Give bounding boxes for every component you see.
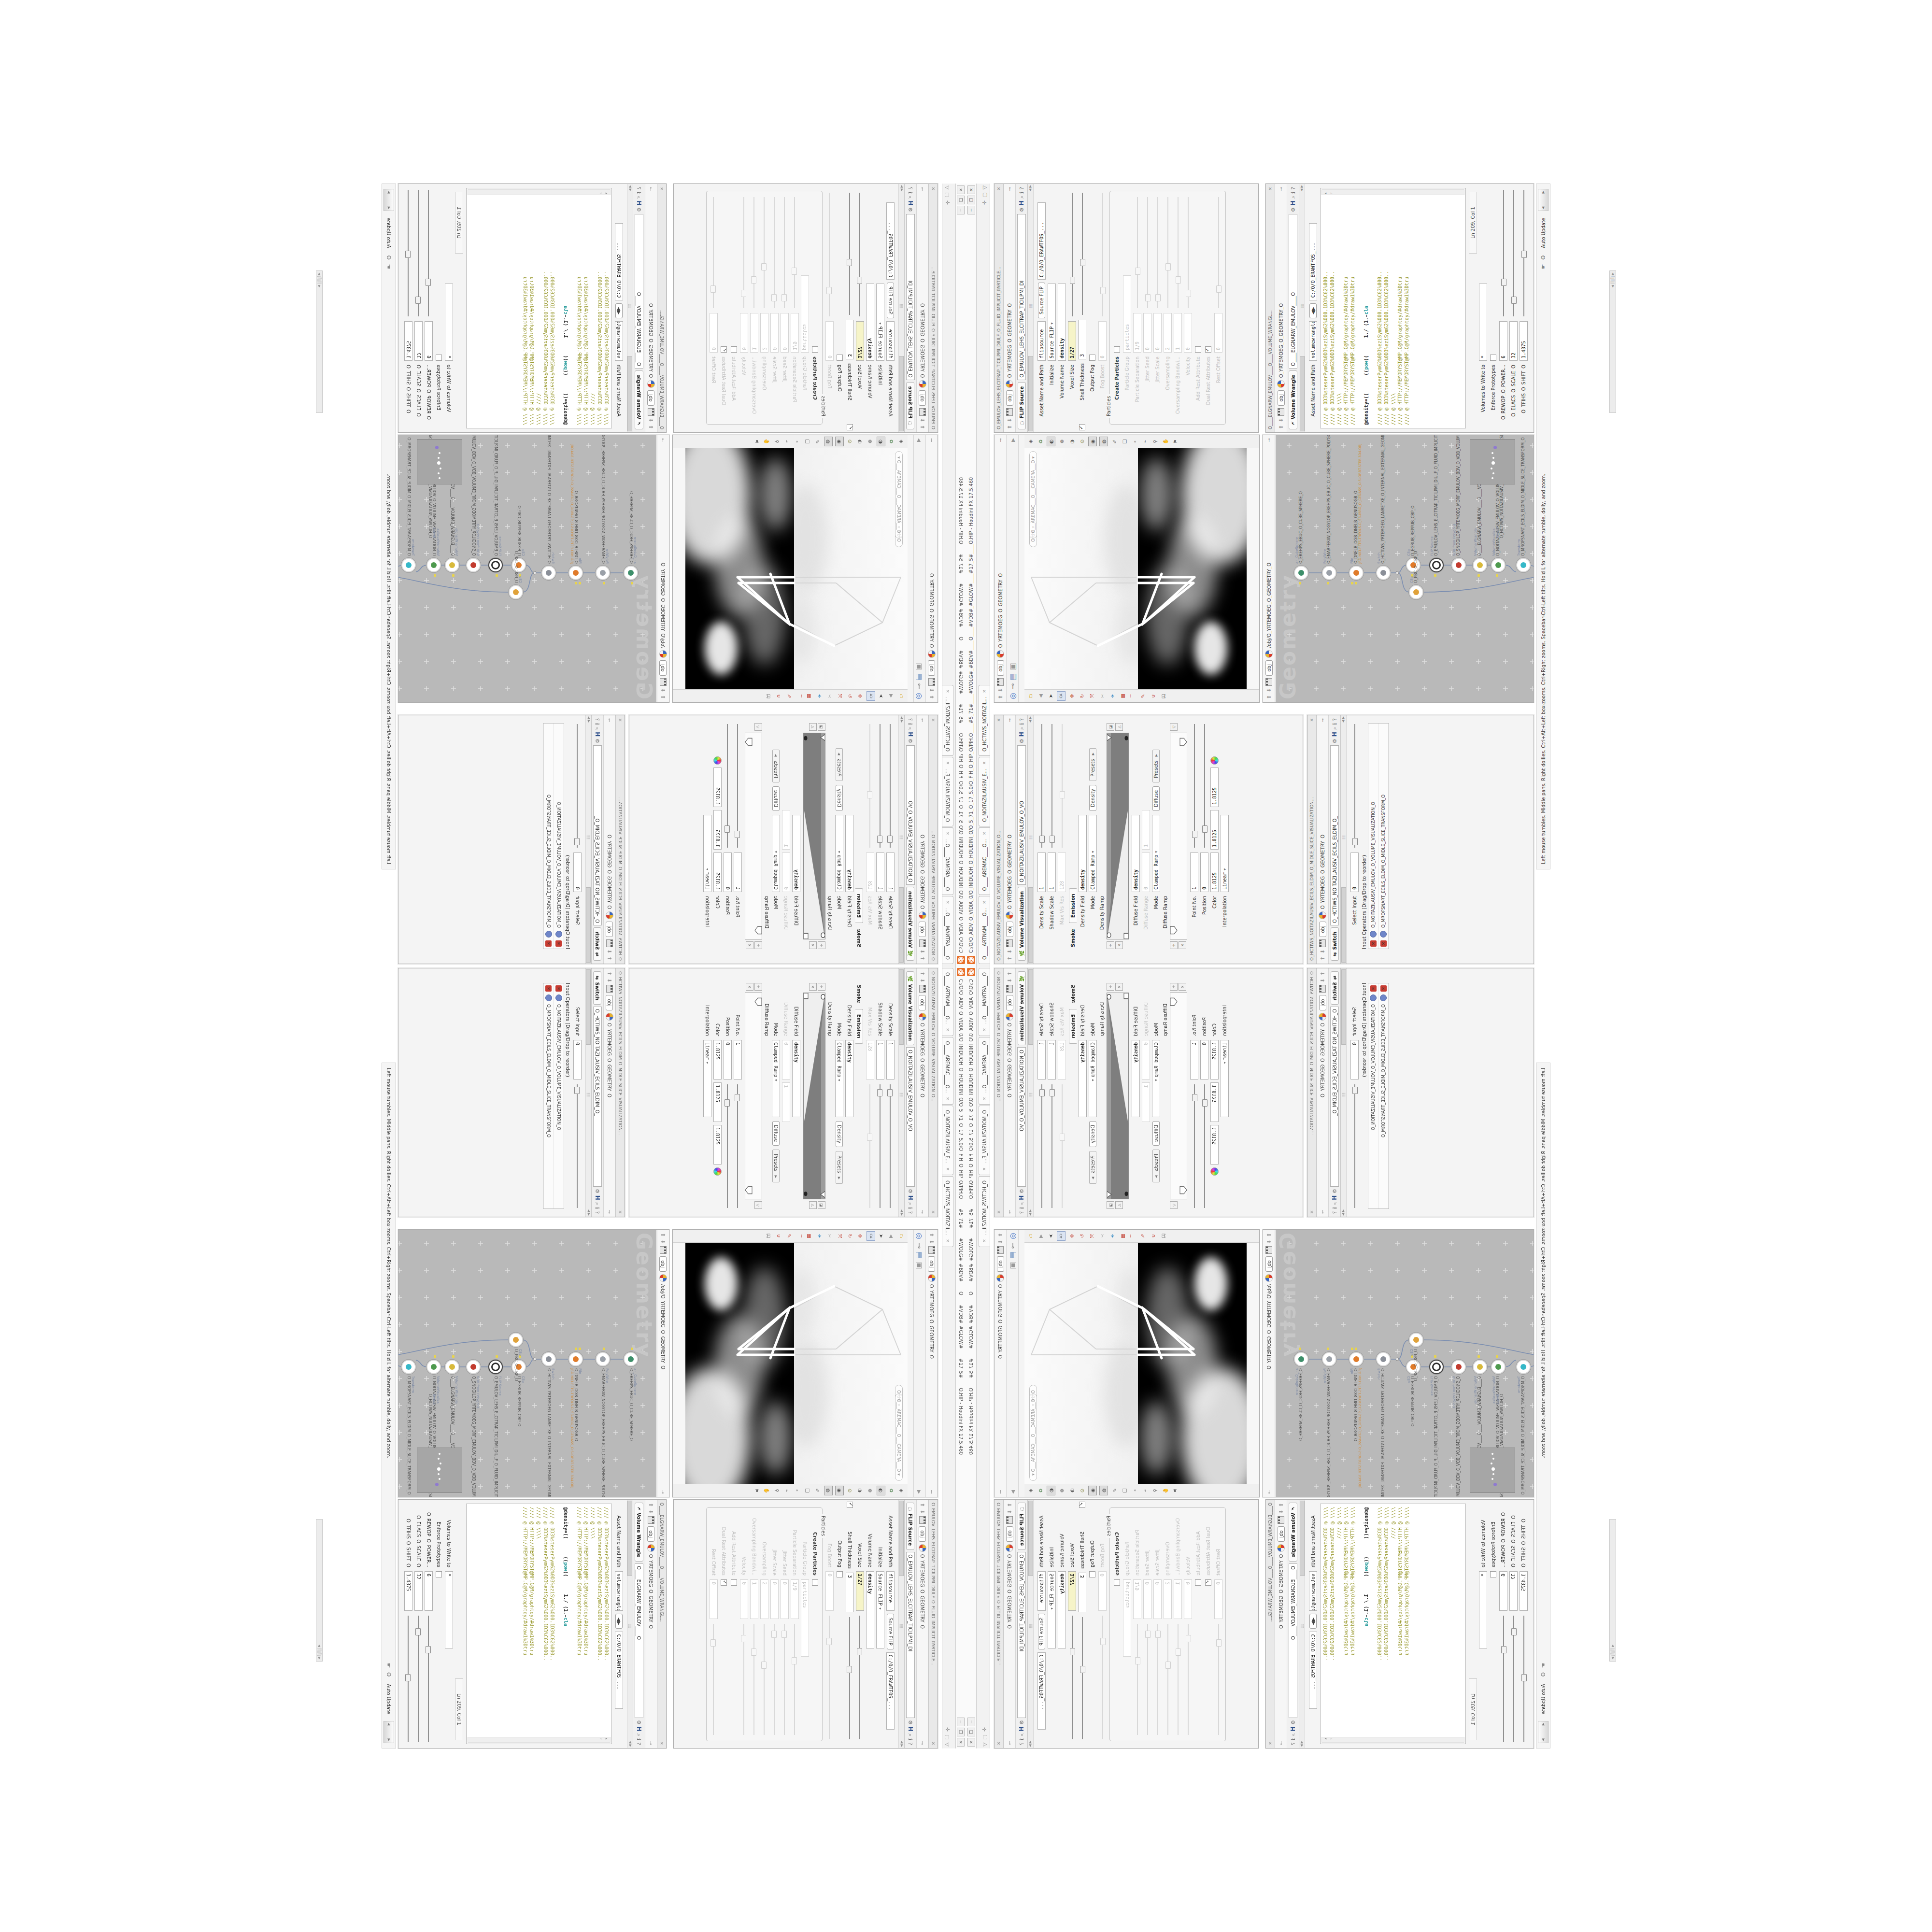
presets-button[interactable]: Presets▶ [1152,750,1160,782]
target-icon[interactable]: ◉ [1088,1486,1097,1495]
pin-icon[interactable]: ⊸ [649,187,654,191]
param-field-keyframed[interactable]: 1/27 [1068,1571,1076,1611]
gear-icon[interactable]: ⚙ [595,739,601,743]
operator-tab[interactable]: ⇆ Switch [594,927,602,961]
param-slider[interactable] [850,193,851,315]
help-icon[interactable]: ? [1290,187,1296,190]
view-tool-icon[interactable]: CA [1057,691,1065,701]
info-icon[interactable]: ℹ [908,192,914,194]
add-rest-checkbox[interactable] [731,1579,737,1586]
presets-button[interactable]: Presets▶ [772,750,780,782]
asset-path-field[interactable]: C:/O/O_ERAWTFOS_... [886,1652,895,1730]
output-fog-checkbox[interactable] [837,1571,843,1577]
node-polywire[interactable]: PolyWireO_EMARFERIW_NOGYLOP_EREHPS_EBUC_… [1322,566,1336,580]
nav-down-icon[interactable]: ⬇ [607,950,613,954]
add-point-icon[interactable]: ✛ [818,941,825,949]
horizontal-scrollbar[interactable]: ⣿⣿◀ ▶ [1028,184,1034,432]
close-icon[interactable]: ✕ [1268,1741,1273,1745]
pen-tool-icon[interactable]: ✎ [785,692,793,700]
nav-down-icon[interactable]: ⬇ [1266,688,1272,693]
node-volume-wrangle[interactable]: Volume WrangleO____ELGNARW_EMULOV____O__… [445,558,459,572]
param-slider[interactable] [880,1084,881,1208]
marker-icon[interactable]: ▽ [754,723,762,731]
help-icon[interactable]: ? [595,718,601,721]
bulb-icon[interactable]: ⊙ [1078,437,1086,446]
operator-tab[interactable]: 🌿 Volume Visualization [1018,887,1026,961]
param-field[interactable]: 1.4375 [404,321,412,361]
param-field[interactable]: 6 [425,1571,433,1611]
snapshot-icon[interactable]: ▣ [915,663,924,670]
param-field[interactable]: 1.8125 [713,852,722,892]
pin-icon[interactable]: ⊸ [607,1210,612,1214]
recycle-icon[interactable]: ♻ [1540,255,1547,260]
param-field[interactable]: 0 [1200,852,1208,892]
param-slider[interactable] [1072,1616,1073,1739]
radial-menu-icon[interactable]: ◎ [915,1233,924,1239]
paint-tool-icon[interactable]: ✈ [816,1232,824,1240]
lasso-tool-icon[interactable]: ⌒ [796,692,803,700]
select-tool-icon[interactable]: ➤ [1047,1232,1054,1240]
move-tool-icon[interactable]: ✥ [1068,692,1076,700]
add-point-icon[interactable]: ✛ [1170,983,1178,991]
obj-chip[interactable]: obj [919,995,926,1010]
param-field-keyframed[interactable]: 1/27 [856,1571,864,1611]
param-field[interactable]: 1 [734,1040,742,1080]
close-icon[interactable]: ✕ [957,185,965,194]
param-field[interactable]: 1.8125 [1210,810,1219,850]
param-slider[interactable] [1082,193,1083,315]
node-volume-visualization[interactable]: VolumeVisualizaO_NOITAZILAUSIV_EMULOV_O_… [426,558,441,572]
layout-icon[interactable]: ▤ [915,673,924,681]
param-field[interactable]: 1 [734,852,742,892]
help-icon[interactable]: ? [636,187,642,190]
view-mode-icon[interactable]: ◈ [898,437,906,446]
tab-close-icon[interactable]: ✕ [982,689,987,693]
density-ramp-widget[interactable]: ✛ ✕ ◪ △ [1107,723,1129,949]
magnifier-icon[interactable]: ⌕ [1019,1733,1025,1736]
layout-icon[interactable]: ▤ [1008,673,1017,681]
tab-emission[interactable]: Emission [1069,888,1077,923]
right-arrow-icon[interactable]: ▶ [1541,1739,1545,1741]
grid-tool-icon[interactable]: ▦ [806,1232,813,1240]
delete-point-icon[interactable]: ✕ [1179,941,1186,949]
notes-tool-icon[interactable]: 🗀 [1026,692,1034,700]
brush-icon[interactable]: ✐ [1110,437,1118,446]
magnifier-icon[interactable]: ⌕ [636,196,642,199]
close-icon[interactable]: ✕ [659,1741,664,1745]
pane-icon[interactable]: ▢ [981,1734,988,1739]
param-field[interactable]: 1.4375 [1520,1571,1528,1611]
param-field[interactable]: 1.8125 [1210,852,1219,892]
nav-up-icon[interactable]: ⬆ [1007,425,1013,429]
hand-icon[interactable]: ✋ [1161,1486,1169,1495]
camera-lock-icon[interactable]: ◐ [877,437,885,446]
nav-up-icon[interactable]: ⬆ [1266,695,1272,699]
scale-tool-icon[interactable]: ⤧ [1088,692,1096,700]
maximize-icon[interactable]: ❐ [967,196,975,204]
node-volume-wrangle[interactable]: Volume WrangleO____ELGNARW_EMULOV____O__… [1473,1360,1487,1374]
float-window-title[interactable]: O_NOITAZILAUSIV_EMULOV_O_VOLUME_VISUALIZ… [994,715,1004,964]
tab-close-icon[interactable]: ✕ [945,689,950,693]
list-item[interactable]: ✕ O_MROFSNART_ECILS_ELDIM_O_MIDLE_SLICE_… [543,983,554,1208]
close-icon[interactable]: ✕ [1268,187,1273,191]
mode-dropdown[interactable]: Clamped Ramp▼ [1089,1040,1097,1117]
interpolation-dropdown[interactable]: Linear▼ [703,815,711,892]
tab-close-icon[interactable]: ✕ [982,1167,987,1171]
hook-icon[interactable]: ⌁ [783,1486,791,1495]
param-field[interactable]: 1.4375 [1520,321,1528,361]
horizontal-scrollbar[interactable]: ⣿⣿◀ ▶ [1299,1500,1305,1748]
node-switch-1[interactable]: SwitchO_HCTIWS_YRTEMOEG_LANRETXE_O_INTER… [1376,566,1391,580]
expand-icon[interactable]: ◪ [1107,723,1114,731]
view-tool-icon[interactable]: CA [867,1231,875,1241]
node-vdb-from-polygons[interactable]: VDB from PolygonsO_SNOGILOP_YRTEMOEG_MOR… [466,558,481,572]
node-file[interactable]: FileO_DNELB_OGB_DNELB_GENUSOGB_OJRD.N03.… [568,566,583,580]
mask-icon[interactable]: ❏ [804,1486,811,1495]
nav-down-icon[interactable]: ⬇ [997,1239,1004,1244]
param-field[interactable]: density [1132,815,1140,892]
obj-chip[interactable]: obj [1265,1256,1273,1271]
rotate-tool-icon[interactable]: ↻ [846,692,854,700]
diffuse-ramp-widget[interactable]: ✛ ✕ ▽ [1170,983,1187,1209]
tab-emission[interactable]: Emission [855,1009,863,1044]
help-icon[interactable]: ? [1019,718,1025,721]
operator-name-field[interactable]: O____ELGNARW_EMULOV____O [1289,1563,1297,1718]
recycle-view-icon[interactable]: ♻ [888,1486,895,1495]
param-field[interactable]: 1 [1048,1040,1056,1080]
network-breadcrumb[interactable]: /obj/O_YRTEMOEG_O_GEOMETRY_O [1266,563,1272,648]
collapse-icon[interactable]: ▽ [981,1743,988,1747]
nav-up-icon[interactable]: ⬆ [1320,956,1326,961]
asset-path-field[interactable]: C:/O/O_ERAWTFOS_... [1309,1632,1317,1709]
node-vdb-from-polygons[interactable]: VDB from PolygonsO_SNOGILOP_YRTEMOEG_MOR… [1451,1360,1466,1374]
nav-down-icon[interactable]: ⬇ [1320,950,1326,954]
operator-tab[interactable]: ◌ FLIP Source [907,382,915,429]
info-icon[interactable]: ℹ [1019,1738,1025,1740]
delete-input-icon[interactable]: ✕ [556,940,562,947]
shade-icon[interactable]: ◍ [1099,437,1108,446]
pane-icon[interactable]: ▢ [944,192,951,197]
cut-tool-icon[interactable]: ✂ [1098,692,1106,700]
info-icon[interactable]: ℹ [908,723,914,725]
color-wheel-icon[interactable] [1210,1167,1219,1176]
tab-visualization[interactable]: O_NOITAZILAUSIV_E... ✕ [942,1106,953,1175]
tab-mantra[interactable]: O____ARTNAM____O... ✕ [942,968,953,1036]
tab-smoke[interactable]: Smoke [1069,980,1077,1008]
nav-down-icon[interactable]: ⬇ [660,688,667,693]
param-field[interactable]: density [845,815,853,892]
enforce-prototypes-checkbox[interactable] [1490,1571,1496,1577]
geometry-path[interactable]: O_YRTEMOEG_O_GEOMETRY_O [607,1023,612,1097]
back-tool-icon[interactable]: ◀ [1037,692,1044,700]
horizontal-scrollbar[interactable]: ⣿⣿◀ ▶ [1341,715,1347,964]
param-field[interactable]: 1.8125 [1210,1125,1219,1165]
snapshot-icon[interactable]: ▣ [1008,663,1017,670]
magnifier-icon[interactable]: ⌕ [908,196,914,199]
nav-up-icon[interactable]: ⬆ [920,956,926,961]
viewport-canvas[interactable]: Ortho ▾ O___AREMAC___O___CAMERA___O ▾ [1024,1243,1259,1484]
recycle-view-icon[interactable]: ♻ [1037,1486,1044,1495]
param-field[interactable]: density [1079,815,1087,892]
nav-up-icon[interactable]: ⬆ [997,695,1004,699]
nav-down-icon[interactable]: ⬇ [1266,1239,1272,1244]
operator-tab[interactable]: ⇆ Switch [1331,971,1339,1005]
float-window-title[interactable]: O____ELGNARW_EMULOV____O____VOLUME_WRANG… [657,1500,666,1748]
marker-icon[interactable]: △ [1115,1201,1123,1209]
magnifier-icon[interactable]: ⌕ [1332,1202,1338,1205]
bottom-scroll-strip[interactable] [316,1519,323,1662]
node-switch-1[interactable]: SwitchO_HCTIWS_YRTEMOEG_LANRETXE_O_INTER… [541,1352,556,1366]
network-minimap[interactable] [417,1448,462,1493]
nav-down-icon[interactable]: ⬇ [920,950,926,954]
horizontal-scrollbar[interactable]: ⣿⣿◀ ▶ [1028,1500,1034,1748]
operator-name-field[interactable]: O_NOITAZILAUSIV_EMULOV_O_VO [1017,1047,1026,1187]
density-ramp[interactable] [1107,733,1129,939]
param-field[interactable]: 0 [1350,1040,1359,1080]
help-icon[interactable]: ? [1019,1211,1025,1214]
add-point-icon[interactable]: ✛ [1107,983,1114,991]
param-field[interactable]: density [792,815,800,892]
nav-down-icon[interactable]: ⬇ [1007,1509,1013,1514]
wand-icon[interactable]: ⚲ [773,1486,781,1495]
update-mode-strip[interactable]: ◀▶ [1538,1721,1548,1743]
asset-lr-chip[interactable]: ◀▶ [615,1614,623,1629]
left-arrow-icon[interactable]: ◀ [1541,207,1545,209]
vertical-scrollbar[interactable] [1321,1737,1464,1743]
obj-chip[interactable]: obj [1319,995,1326,1010]
param-field[interactable]: 1.8125 [1210,767,1219,807]
ramp-target-chip[interactable]: Diffuse [1152,1121,1160,1146]
param-slider[interactable] [428,190,429,316]
geometry-path[interactable]: O_YRTEMOEG_O_GEOMETRY_O [649,303,654,378]
help-icon[interactable]: ? [595,1211,601,1214]
expand-icon[interactable]: ◪ [818,1201,825,1209]
geometry-path[interactable]: O_YRTEMOEG_O_GEOMETRY_O [1320,1023,1325,1097]
param-field[interactable]: 6 [1499,321,1507,361]
obj-chip[interactable]: obj [997,660,1004,675]
rotate-tool-icon[interactable]: ↻ [1078,692,1086,700]
pin-icon[interactable]: ⊸ [915,1242,924,1249]
float-window-title[interactable]: O_EMULOV_LEHS_ELCITRAP_TICILPMI_DIULF_O_… [994,184,1004,432]
book-tool-icon[interactable]: 🕮 [765,692,773,700]
geometry-path[interactable]: O_YRTEMOEG_O_GEOMETRY_O [920,835,925,909]
brush-icon[interactable]: ✐ [814,437,822,446]
dual-rest-checkbox[interactable] [721,1579,727,1586]
nav-up-icon[interactable]: ⬆ [929,695,935,699]
tab-smoke[interactable]: Smoke [1069,924,1077,952]
delete-point-icon[interactable]: ✕ [1179,983,1186,991]
magnifier-icon[interactable]: ⌕ [1019,727,1025,730]
nav-up-icon[interactable]: ⬆ [920,1503,926,1507]
param-field[interactable]: 0 [573,852,582,892]
param-field[interactable]: density [845,1040,853,1117]
param-field[interactable]: density [1132,1040,1140,1117]
obj-chip[interactable]: obj [1006,922,1013,937]
horizontal-scrollbar[interactable]: ⣿⣿◀ ▶ [627,184,633,432]
horizontal-scrollbar[interactable]: ⣿⣿◀ ▶ [898,1500,904,1748]
presets-button[interactable]: Presets▶ [836,748,843,781]
nav-down-icon[interactable]: ⬇ [1007,418,1013,423]
ramp-target-chip[interactable]: Density [1089,785,1096,811]
network-breadcrumb[interactable]: /obj/O_YRTEMOEG_O_GEOMETRY_O [661,1284,666,1369]
bulb-icon[interactable]: ⊙ [846,437,854,446]
param-slider[interactable] [727,724,728,848]
vertical-scrollbar[interactable] [1321,189,1464,195]
operator-tab[interactable]: 🌿 Volume Visualization [907,971,915,1045]
pin-icon[interactable]: ⊸ [1007,1741,1012,1745]
light-icon[interactable]: ◑ [1068,1486,1076,1495]
param-field[interactable]: 1 [876,852,884,892]
mode-dropdown[interactable]: Clamped Ramp▼ [772,815,780,892]
camera-lock-icon[interactable]: ◐ [1047,437,1055,446]
ramp-target-chip[interactable]: Density [1089,1121,1096,1147]
delete-point-icon[interactable]: ✕ [809,941,817,949]
geometry-path[interactable]: O_YRTEMOEG_O_GEOMETRY_O [998,1284,1003,1359]
nav-down-icon[interactable]: ⬇ [660,1239,667,1244]
delete-input-icon[interactable]: ✕ [1370,940,1377,947]
nav-down-icon[interactable]: ⬇ [1278,1509,1284,1514]
presets-button[interactable]: Presets▶ [1089,1151,1096,1184]
snapshot-icon[interactable]: ▣ [915,1262,924,1269]
maximize-icon[interactable]: ❐ [957,196,965,204]
marker-icon[interactable]: △ [809,1201,817,1209]
nav-up-icon[interactable]: ⬆ [1320,971,1326,976]
operator-name-field[interactable]: O_NOITAZILAUSIV_EMULOV_O_VO [906,1047,915,1187]
initialize-dropdown[interactable]: Source FLIP▼ [1048,284,1056,361]
help-icon[interactable]: ? [908,1211,914,1214]
param-field[interactable]: 0 [573,1040,582,1080]
asset-lr-chip[interactable]: ◀▶ [1309,303,1317,318]
param-slider[interactable] [1082,1617,1083,1739]
list-item[interactable]: ✕ O_MROFSNART_ECILS_ELDIM_O_MIDLE_SLICE_… [1378,983,1389,1208]
bottom-scroll-strip[interactable] [1609,1519,1616,1662]
param-field[interactable]: density [866,284,874,361]
operator-name-field[interactable]: O____ELGNARW_EMULOV____O [1289,214,1297,369]
flag-icon[interactable]: ⚑ [1171,437,1179,446]
gear-icon[interactable]: ⚙ [908,1720,914,1725]
rotate-tool-icon[interactable]: ↻ [846,1232,854,1240]
presets-button[interactable]: Presets▶ [1089,748,1096,781]
update-mode-strip[interactable]: ◀▶ [1538,189,1548,211]
camera-lock-icon[interactable]: ◐ [1047,1486,1055,1495]
operator-tab[interactable]: ◌ FLIP Source [1018,382,1026,429]
nav-down-icon[interactable]: ⬇ [1278,418,1284,423]
obj-chip[interactable]: obj [1278,390,1285,405]
param-field[interactable]: 1 [1190,852,1198,892]
param-field[interactable]: 1.4375 [404,1571,412,1611]
lasso-tool-icon[interactable]: ⌒ [796,1232,803,1240]
dual-rest-checkbox[interactable] [721,346,727,353]
camera-pill[interactable]: O___AREMAC___O___CAMERA___O ▾ [1029,1393,1037,1481]
hand-icon[interactable]: ✋ [763,437,771,446]
lasso-tool-icon[interactable]: ⌒ [1129,1232,1136,1240]
interpolation-dropdown[interactable]: Linear▼ [1221,1040,1229,1117]
node-switch-1[interactable]: SwitchO_HCTIWS_YRTEMOEG_LANRETXE_O_INTER… [541,566,556,580]
operator-name-field[interactable]: O_EMULOV_LEHS_ELCITRAP_TICILPMI_DI [1017,1552,1026,1718]
pin-icon[interactable]: ⊸ [1320,718,1325,722]
initialize-dropdown[interactable]: Source FLIP▼ [1048,1571,1056,1648]
geometry-path[interactable]: O_YRTEMOEG_O_GEOMETRY_O [607,835,612,909]
param-slider[interactable] [1041,724,1042,848]
collapse-icon[interactable]: ▽ [981,185,988,189]
diffuse-ramp-widget[interactable]: ✛ ✕ ▽ [745,983,762,1209]
param-field[interactable]: density [1058,284,1066,361]
param-field[interactable]: 1 [1037,1040,1046,1080]
network-breadcrumb[interactable]: /obj/O_YRTEMOEG_O_GEOMETRY_O [661,563,666,648]
param-field[interactable]: density [792,1040,800,1117]
obj-chip[interactable]: obj [660,660,667,675]
cut-tool-icon[interactable]: ✂ [826,692,834,700]
radial-menu-icon[interactable]: ◎ [915,693,924,699]
mode-dropdown[interactable]: Clamped Ramp▼ [1089,815,1097,892]
operator-tab[interactable]: 🗲 Volume Wrangle [1289,370,1297,429]
magnet-tool-icon[interactable]: ∪ [775,1232,783,1240]
node-cubesphere[interactable]: an_CubeSphereO_EREHPS_EBUC_O_CUBE_SPHERE… [624,1352,638,1366]
param-slider[interactable] [1204,724,1205,848]
maximize-icon[interactable]: ❐ [957,1728,965,1736]
asset-name-field[interactable]: flipsource [1037,1571,1046,1611]
camera-pill[interactable]: O___AREMAC___O___CAMERA___O ▾ [1029,451,1037,539]
tab-switch[interactable]: O_HCTIWS_NOITAZIL... ✕ [942,685,953,756]
obj-chip[interactable]: obj [928,1256,936,1271]
notes-tool-icon[interactable]: 🗀 [1026,1232,1034,1240]
auto-update-label[interactable]: Auto Update [1541,1684,1546,1714]
obj-chip[interactable]: obj [606,995,613,1010]
param-slider[interactable] [577,1084,578,1208]
param-slider[interactable] [850,1617,851,1739]
move-tool-icon[interactable]: ✥ [856,1232,864,1240]
grid-tool-icon[interactable]: ▦ [1119,1232,1126,1240]
param-field[interactable]: 1.8125 [713,810,722,850]
list-item[interactable]: ✕ O_NOITAZILAUSIV_EMULOV_O_VOLUME_VISUAL… [1368,724,1378,949]
marker-icon[interactable]: ▽ [1170,723,1178,731]
tab-close-icon[interactable]: ✕ [945,1028,950,1032]
node-transform-slice[interactable]: TransformO_MROFSNART_ECILS_ELDIM_O_MIDLE… [401,558,416,572]
obj-chip[interactable]: obj [648,1526,655,1541]
output-fog-checkbox[interactable] [1089,1571,1095,1577]
pin-icon[interactable]: ⊸ [920,718,925,722]
pin-icon[interactable]: ⊸ [929,1490,935,1494]
operator-name-field[interactable]: O_HCTIWS_NOITAZILAUSIV_ECILS_ELDIM_O_ [593,1007,602,1187]
diffuse-ramp-widget[interactable]: ✛ ✕ ▽ [745,723,762,949]
target-icon[interactable]: ◉ [835,1486,844,1495]
pin-icon[interactable]: ⊸ [661,1490,666,1494]
info-icon[interactable]: ℹ [636,192,642,194]
right-arrow-icon[interactable]: ▶ [387,1739,391,1741]
float-window-title[interactable]: O_HCTIWS_NOITAZILAUSIV_ECILS_ELDIM_O_MID… [1307,715,1317,964]
asset-name-field[interactable]: flipsource [886,321,895,361]
tab-close-icon[interactable]: ✕ [945,1097,950,1101]
operator-tab[interactable]: 🗲 Volume Wrangle [635,1503,643,1562]
help-icon[interactable]: ? [636,1742,642,1745]
brush-icon[interactable]: ✐ [814,1486,822,1495]
right-arrow-icon[interactable]: ▶ [1541,191,1545,193]
dot-icon[interactable]: ∘ [794,1486,801,1495]
view-mode-icon[interactable]: ◈ [1026,437,1034,446]
param-field[interactable]: 3 [1078,1573,1086,1612]
info-icon[interactable]: ℹ [595,723,601,725]
node-file[interactable]: FileO_DNELB_OGB_DNELB_GENUSOGB_OJRD.N03.… [568,1352,583,1366]
shade-icon[interactable]: ◍ [1099,1486,1108,1495]
param-field[interactable]: 0 [1350,852,1359,892]
horizontal-scrollbar[interactable]: ⣿⣿◀ ▶ [898,715,904,964]
radial-menu-icon[interactable]: ◎ [1008,1233,1017,1239]
close-icon[interactable]: ✕ [957,1738,965,1747]
param-field[interactable]: 6 [1499,1571,1507,1611]
list-item[interactable]: ✕ O_MROFSNART_ECILS_ELDIM_O_MIDLE_SLICE_… [543,724,554,949]
magnifier-icon[interactable]: ⌕ [1290,196,1296,199]
nav-down-icon[interactable]: ⬇ [648,418,654,423]
